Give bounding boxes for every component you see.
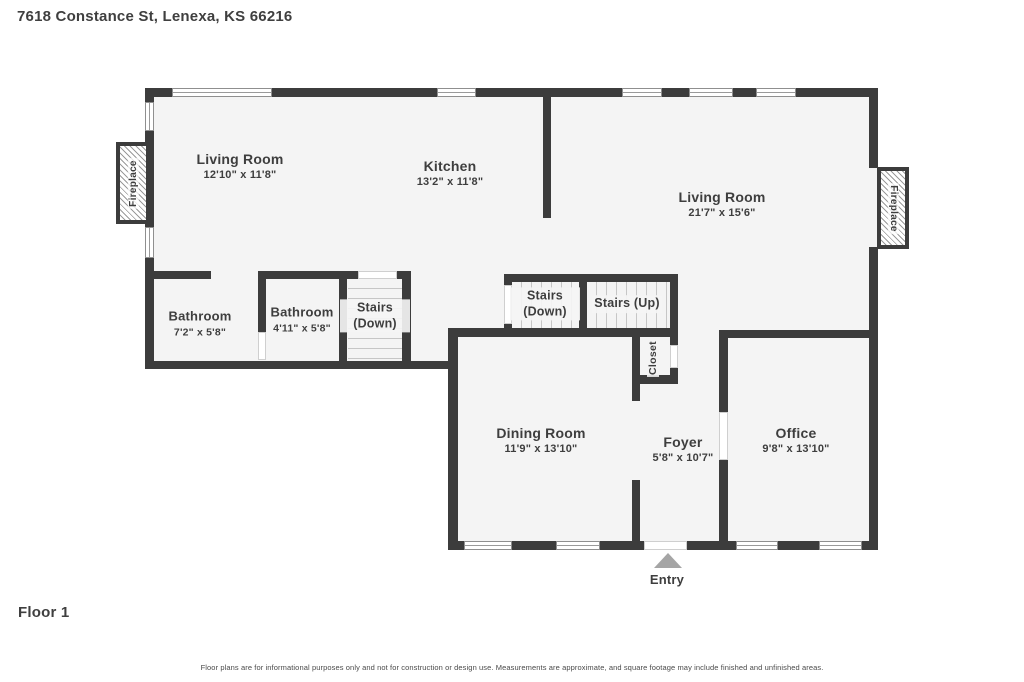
room-label-dining-room: Dining Room 11'9" x 13'10" xyxy=(496,425,585,455)
room-label-foyer: Foyer 5'8" x 10'7" xyxy=(653,434,714,464)
wall xyxy=(145,361,458,369)
room-name: Office xyxy=(762,425,829,441)
disclaimer-text: Floor plans are for informational purpos… xyxy=(0,663,1024,672)
stairs-label-down-mid: Stairs (Down) xyxy=(510,287,580,320)
window xyxy=(464,541,512,550)
room-dims: 4'11" x 5'8" xyxy=(271,322,334,334)
window xyxy=(689,88,733,97)
floor-number-label: Floor 1 xyxy=(18,604,69,621)
window xyxy=(736,541,778,550)
window xyxy=(819,541,862,550)
room-name: Foyer xyxy=(653,434,714,450)
fireplace-left: Fireplace xyxy=(116,142,150,224)
room-name: Kitchen xyxy=(417,158,484,174)
room-dims: 21'7" x 15'6" xyxy=(679,207,766,219)
wall xyxy=(448,328,678,337)
fireplace-right: Fireplace xyxy=(877,167,909,249)
stairs-label-down-left: Stairs (Down) xyxy=(340,299,410,332)
wall xyxy=(258,271,348,279)
window xyxy=(756,88,796,97)
room-dims: 13'2" x 11'8" xyxy=(417,176,484,188)
window xyxy=(556,541,600,550)
room-dims: 12'10" x 11'8" xyxy=(197,169,284,181)
room-label-living-room-right: Living Room 21'7" x 15'6" xyxy=(679,189,766,219)
wall xyxy=(719,330,878,338)
window xyxy=(172,88,272,97)
door-opening xyxy=(258,332,266,360)
room-dims: 9'8" x 13'10" xyxy=(762,443,829,455)
wall xyxy=(869,247,878,550)
wall xyxy=(579,274,587,334)
wall xyxy=(632,480,640,542)
wall xyxy=(145,271,211,279)
room-label-office: Office 9'8" x 13'10" xyxy=(762,425,829,455)
window xyxy=(145,227,154,258)
fireplace-label: Fireplace xyxy=(888,183,899,234)
entry-arrow-icon xyxy=(654,553,682,568)
room-name: Living Room xyxy=(197,151,284,167)
door-opening xyxy=(670,345,678,368)
room-name: Living Room xyxy=(679,189,766,205)
room-dims: 5'8" x 10'7" xyxy=(653,452,714,464)
room-label-bathroom-2: Bathroom 4'11" x 5'8" xyxy=(271,306,334,335)
wall xyxy=(543,88,551,218)
entry-opening xyxy=(644,541,687,550)
room-name: Bathroom xyxy=(169,310,232,325)
room-name: Bathroom xyxy=(271,306,334,321)
wall xyxy=(258,271,266,333)
fireplace-label: Fireplace xyxy=(128,158,139,209)
room-label-living-room-left: Living Room 12'10" x 11'8" xyxy=(197,151,284,181)
wall xyxy=(632,384,640,401)
door-opening xyxy=(719,412,728,460)
room-name: Dining Room xyxy=(496,425,585,441)
window xyxy=(145,102,154,131)
floor-plan: Fireplace Fireplace Living Room 12'10" x… xyxy=(0,0,1024,682)
room-label-kitchen: Kitchen 13'2" x 11'8" xyxy=(417,158,484,188)
window xyxy=(437,88,476,97)
wall xyxy=(869,88,878,168)
wall xyxy=(504,274,678,282)
room-dims: 7'2" x 5'8" xyxy=(169,326,232,338)
room-label-bathroom-1: Bathroom 7'2" x 5'8" xyxy=(169,310,232,339)
window xyxy=(622,88,662,97)
stairs-label-up: Stairs (Up) xyxy=(591,295,662,313)
door-opening xyxy=(358,271,397,279)
entry-label: Entry xyxy=(650,572,684,587)
room-dims: 11'9" x 13'10" xyxy=(496,443,585,455)
closet-label: Closet xyxy=(647,339,659,377)
